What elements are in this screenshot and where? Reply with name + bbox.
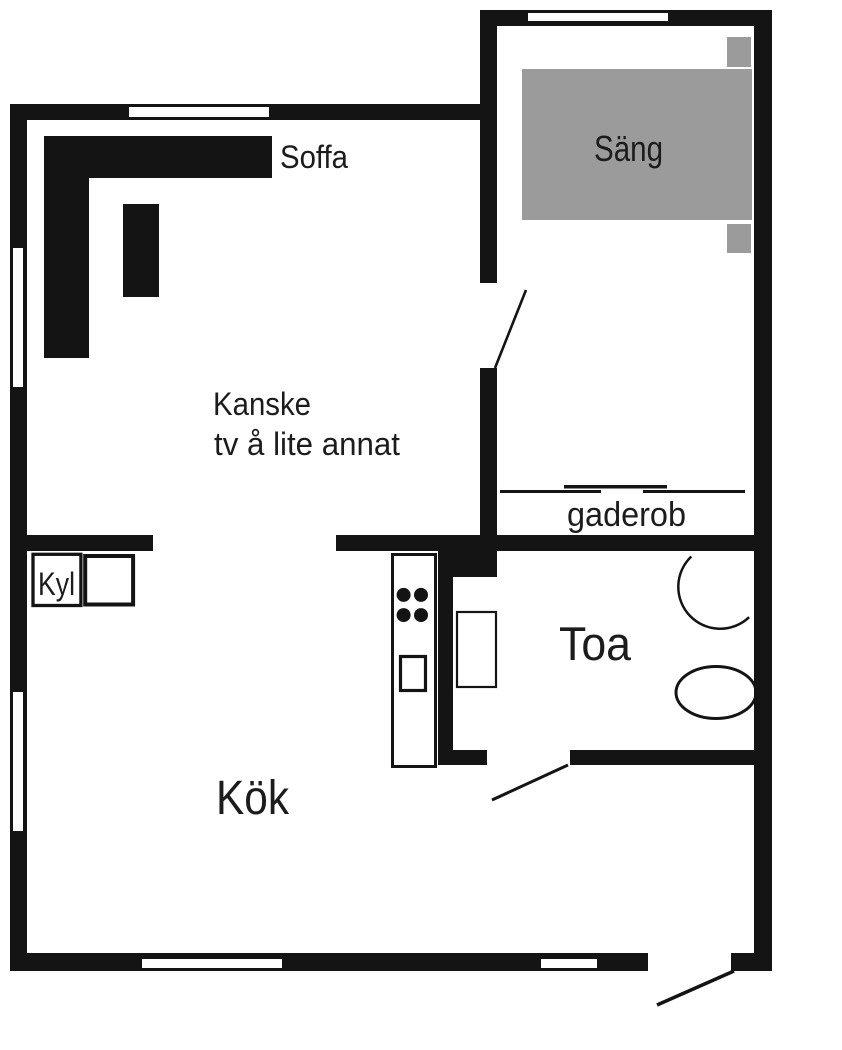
svg-text:gaderob: gaderob xyxy=(567,496,686,534)
svg-text:Toa: Toa xyxy=(559,617,632,670)
svg-text:Kyl: Kyl xyxy=(38,566,75,602)
svg-text:Kanske: Kanske xyxy=(213,386,311,422)
svg-text:Kök: Kök xyxy=(216,772,290,825)
svg-text:Soffa: Soffa xyxy=(280,139,348,175)
svg-text:Säng: Säng xyxy=(594,128,663,169)
svg-text:tv å lite annat: tv å lite annat xyxy=(214,426,400,462)
